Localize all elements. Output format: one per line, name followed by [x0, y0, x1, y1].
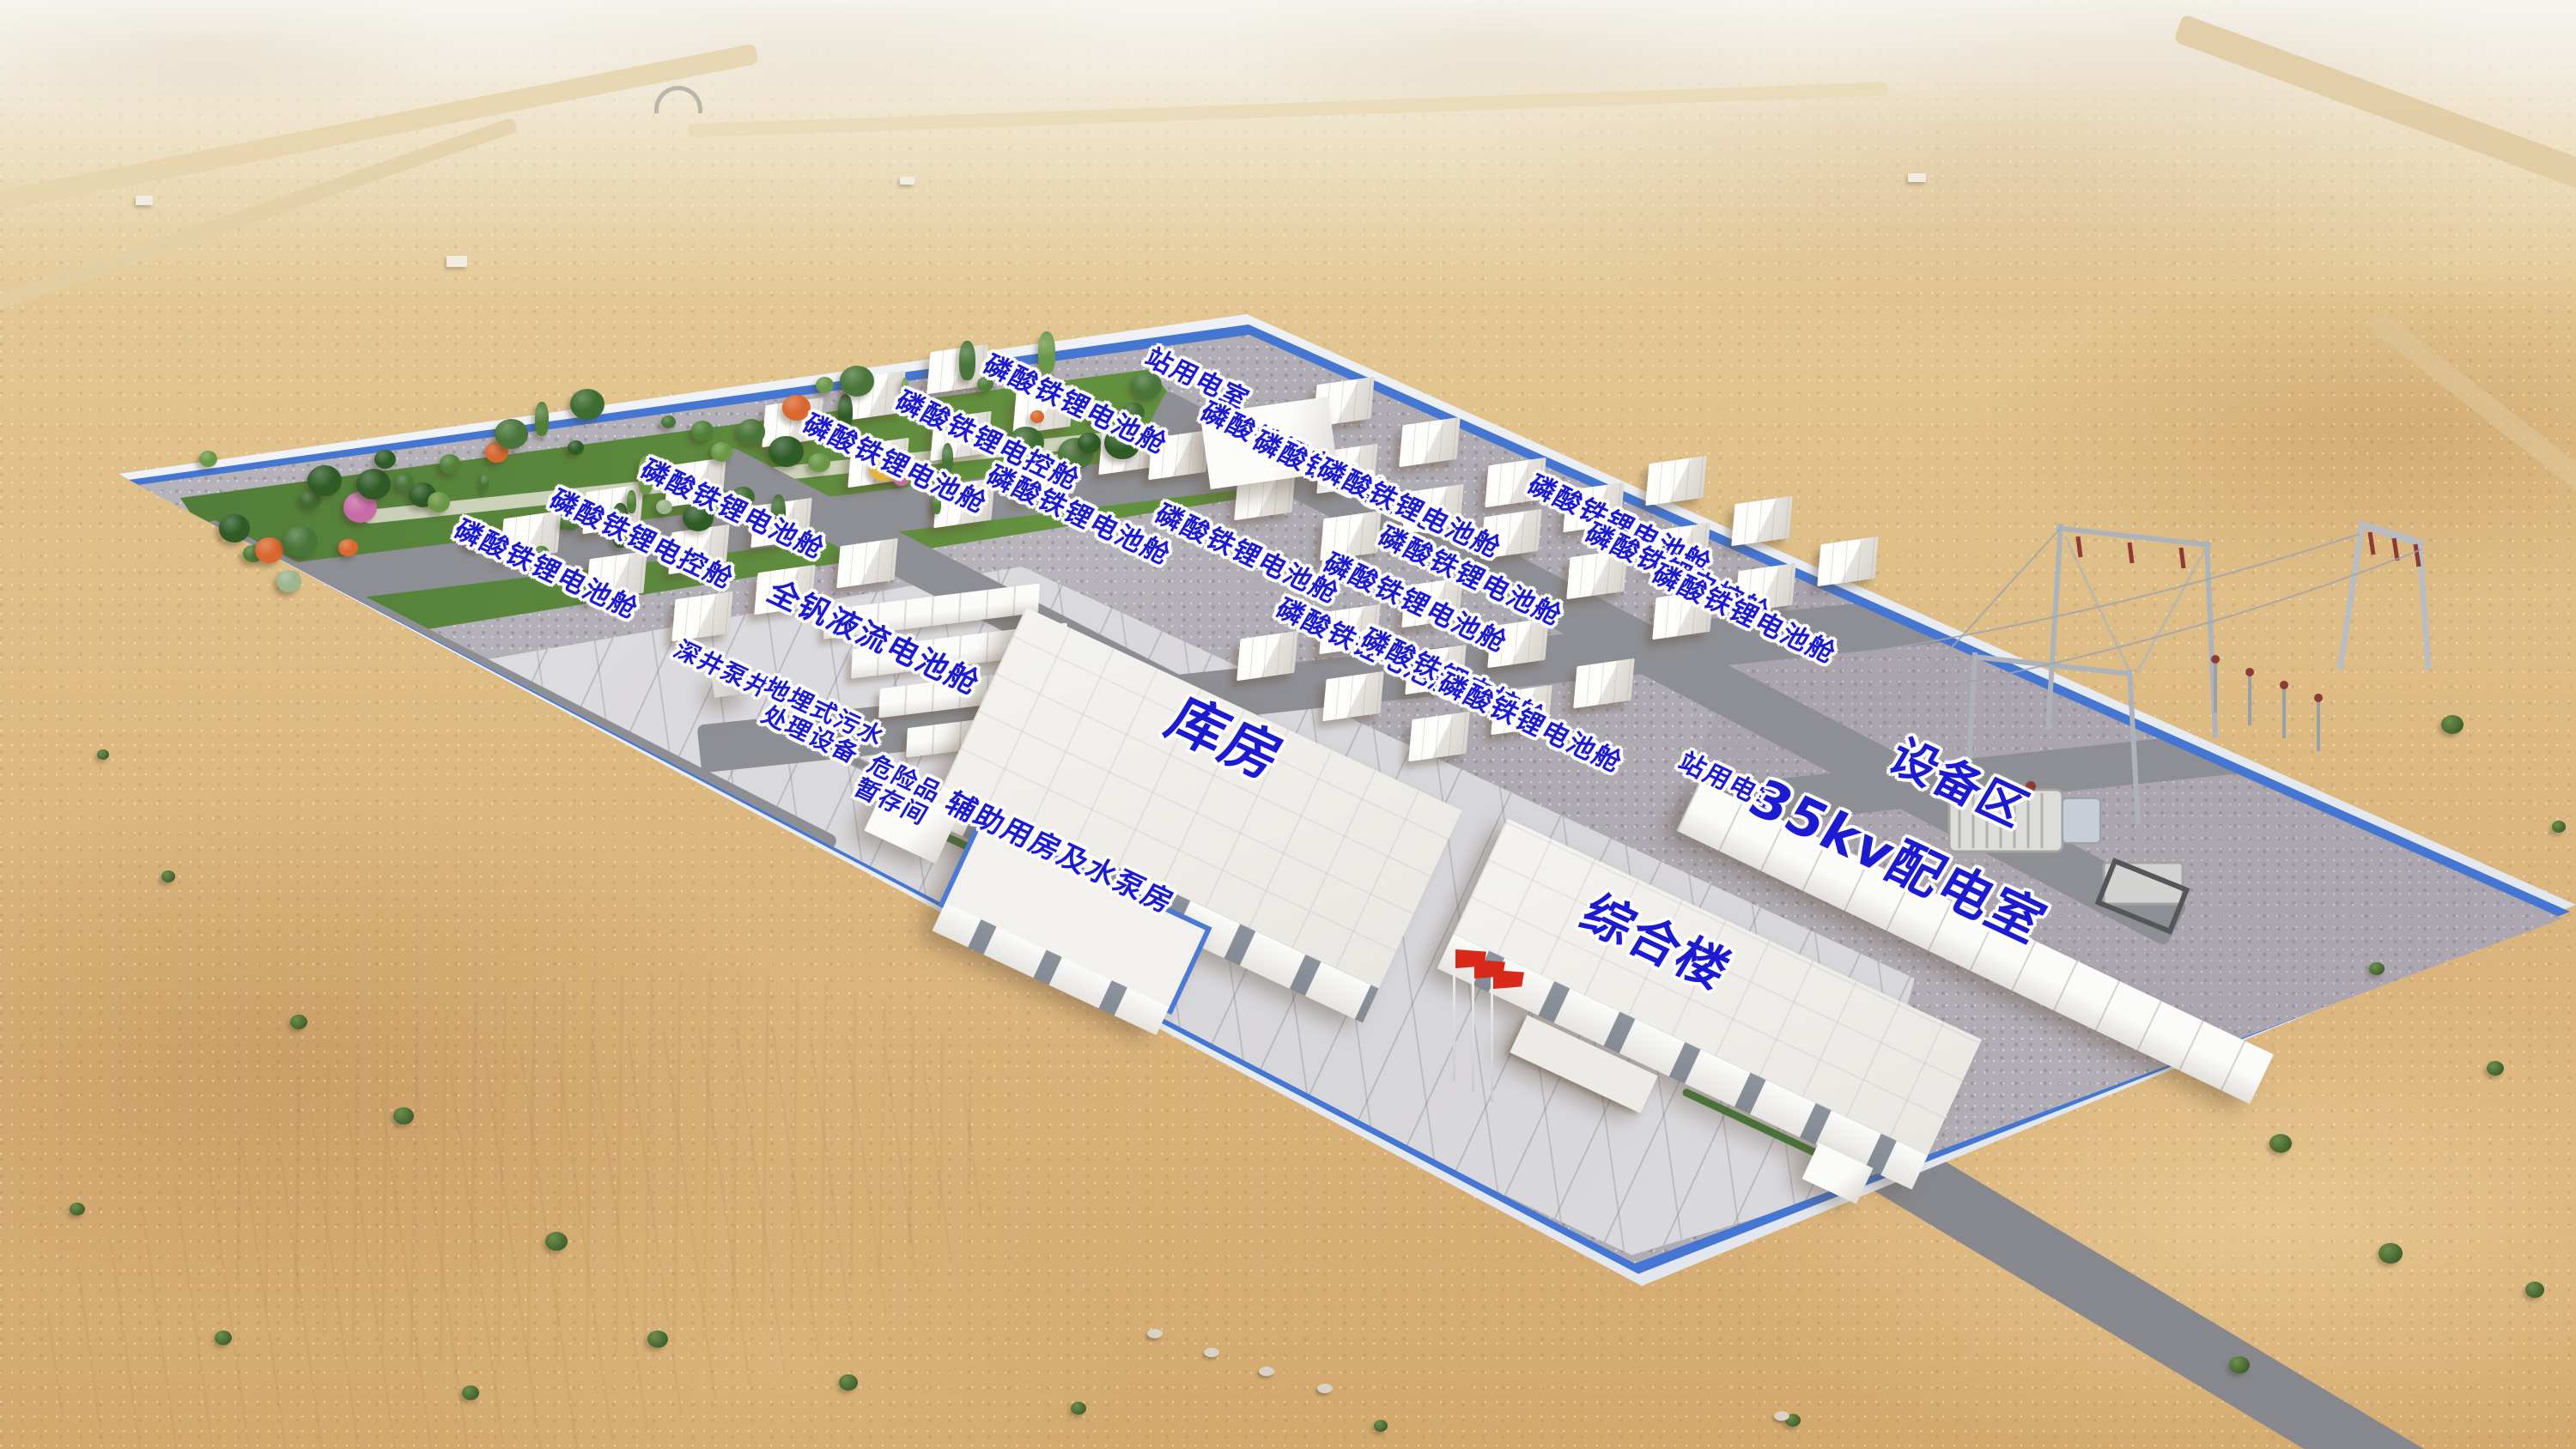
desert-shrub	[2441, 715, 2464, 734]
desert-shrub	[2525, 1282, 2544, 1298]
battery-cabin	[1645, 456, 1707, 506]
tree	[711, 442, 732, 462]
flag-pole	[1491, 972, 1493, 1102]
battery-cabin	[1399, 417, 1461, 468]
battery-cabin	[586, 551, 647, 602]
conifer-tree	[1038, 331, 1055, 374]
tree	[219, 514, 250, 542]
tree	[840, 366, 874, 397]
battery-cabin	[1566, 549, 1628, 600]
battery-cabin	[668, 524, 730, 575]
battery-cabin	[1405, 645, 1467, 695]
tree	[1122, 403, 1144, 422]
conifer-tree	[535, 402, 549, 436]
tree	[816, 377, 834, 393]
red-flag	[1493, 970, 1524, 989]
tree	[440, 454, 461, 473]
rock	[1317, 1384, 1333, 1393]
tree	[661, 415, 676, 428]
label-equipment-area: 设备区	[1880, 731, 2038, 836]
battery-cabin	[933, 478, 995, 529]
battery-cabin	[1649, 523, 1710, 573]
tree	[1008, 427, 1044, 459]
battery-cabin	[1485, 458, 1546, 508]
desert-shrub	[2269, 1134, 2292, 1153]
tree	[769, 436, 804, 468]
tree	[738, 419, 765, 444]
conifer-tree	[771, 494, 785, 530]
battery-cabin	[1320, 511, 1382, 561]
battery-cabin	[1487, 618, 1549, 669]
tree	[356, 469, 391, 500]
label-lfp-battery-a3: 磷酸铁锂电池舱	[981, 461, 1176, 571]
battery-cabin	[836, 538, 898, 589]
aerial-site-rendering: 站用电室磷酸铁锂电池舱磷酸铁锂电控舱磷酸铁锂电池舱磷酸铁锂电池舱磷酸铁锂电池舱磷…	[0, 0, 2576, 1449]
tree	[307, 465, 342, 496]
rock	[1204, 1348, 1219, 1357]
desert-shrub	[161, 870, 175, 882]
flag-pole	[1453, 951, 1455, 1082]
battery-cabin	[1491, 685, 1552, 736]
tree	[561, 513, 580, 530]
desert-shrub	[462, 1385, 479, 1400]
battery-cabin	[1731, 496, 1793, 547]
flag-pole	[1472, 961, 1474, 1092]
tree	[977, 377, 993, 391]
rock	[1259, 1367, 1274, 1376]
battery-cabin	[1236, 631, 1298, 682]
battery-cabin	[1563, 482, 1625, 533]
battery-cabin	[500, 511, 562, 561]
conifer-tree	[942, 443, 954, 473]
battery-cabin	[1148, 430, 1210, 481]
desert-shrub	[1374, 1420, 1388, 1432]
desert-shrub	[545, 1232, 568, 1251]
deep-well-pump-structure	[711, 667, 750, 698]
tree	[808, 453, 829, 473]
battery-cabin	[1480, 509, 1542, 560]
conifer-tree	[627, 490, 636, 513]
rock	[1147, 1329, 1163, 1338]
desert-shrub	[2552, 821, 2566, 833]
battery-cabin	[671, 591, 733, 642]
flowering-tree	[782, 395, 811, 421]
rock	[1774, 1411, 1789, 1421]
battery-cabin	[1408, 712, 1470, 762]
conifer-tree	[638, 456, 653, 494]
site-labels: 站用电室磷酸铁锂电池舱磷酸铁锂电控舱磷酸铁锂电池舱磷酸铁锂电池舱磷酸铁锂电池舱磷…	[0, 0, 2576, 1449]
battery-cabin	[1652, 590, 1714, 640]
tree	[283, 526, 318, 557]
tree	[495, 419, 528, 449]
tree	[534, 546, 548, 559]
battery-cabin	[1319, 604, 1381, 655]
conifer-tree	[481, 473, 489, 493]
desert-shrub	[290, 1015, 307, 1029]
desert-shrub	[2379, 1243, 2403, 1264]
tree	[428, 492, 450, 512]
flowering-tree	[1030, 410, 1044, 423]
conifer-tree	[933, 494, 941, 514]
conifer-tree	[838, 394, 853, 429]
battery-cabin	[1573, 658, 1635, 709]
desert-shrub	[97, 749, 109, 760]
battery-cabin	[1817, 537, 1879, 587]
battery-cabin	[1322, 671, 1384, 722]
flowering-tree	[460, 521, 492, 550]
battery-cabin	[665, 458, 726, 508]
tree	[570, 389, 605, 420]
tree	[1078, 433, 1101, 453]
battery-cabin	[1401, 578, 1463, 628]
conifer-tree	[959, 341, 975, 380]
battery-cabin	[1402, 484, 1464, 535]
desert-shrub	[215, 1331, 232, 1345]
label-buried-sewage-treatment: 地埋式污水 处理设备	[745, 673, 890, 773]
battery-cabin	[754, 565, 816, 615]
desert-shrub	[2487, 1061, 2504, 1076]
conifer-tree	[611, 503, 629, 547]
battery-cabin	[1735, 563, 1796, 614]
desert-shrub	[839, 1374, 858, 1391]
tree	[1104, 427, 1140, 459]
conifer-tree	[902, 378, 908, 395]
tree	[1132, 372, 1162, 399]
